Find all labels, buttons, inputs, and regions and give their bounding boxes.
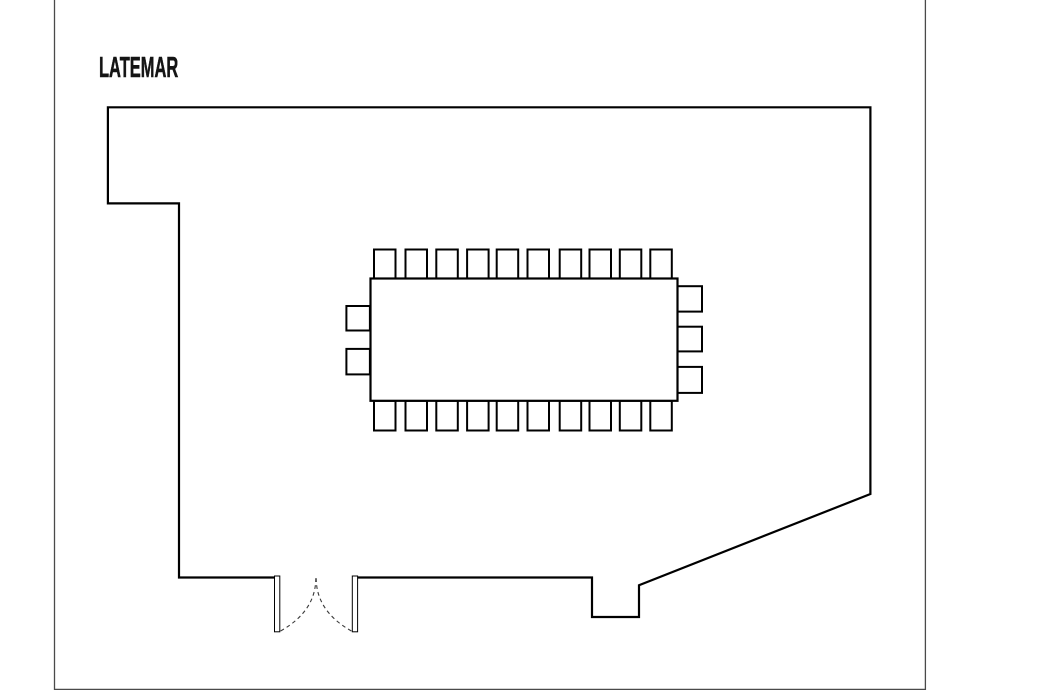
svg-text:LATEMAR: LATEMAR — [99, 51, 178, 83]
